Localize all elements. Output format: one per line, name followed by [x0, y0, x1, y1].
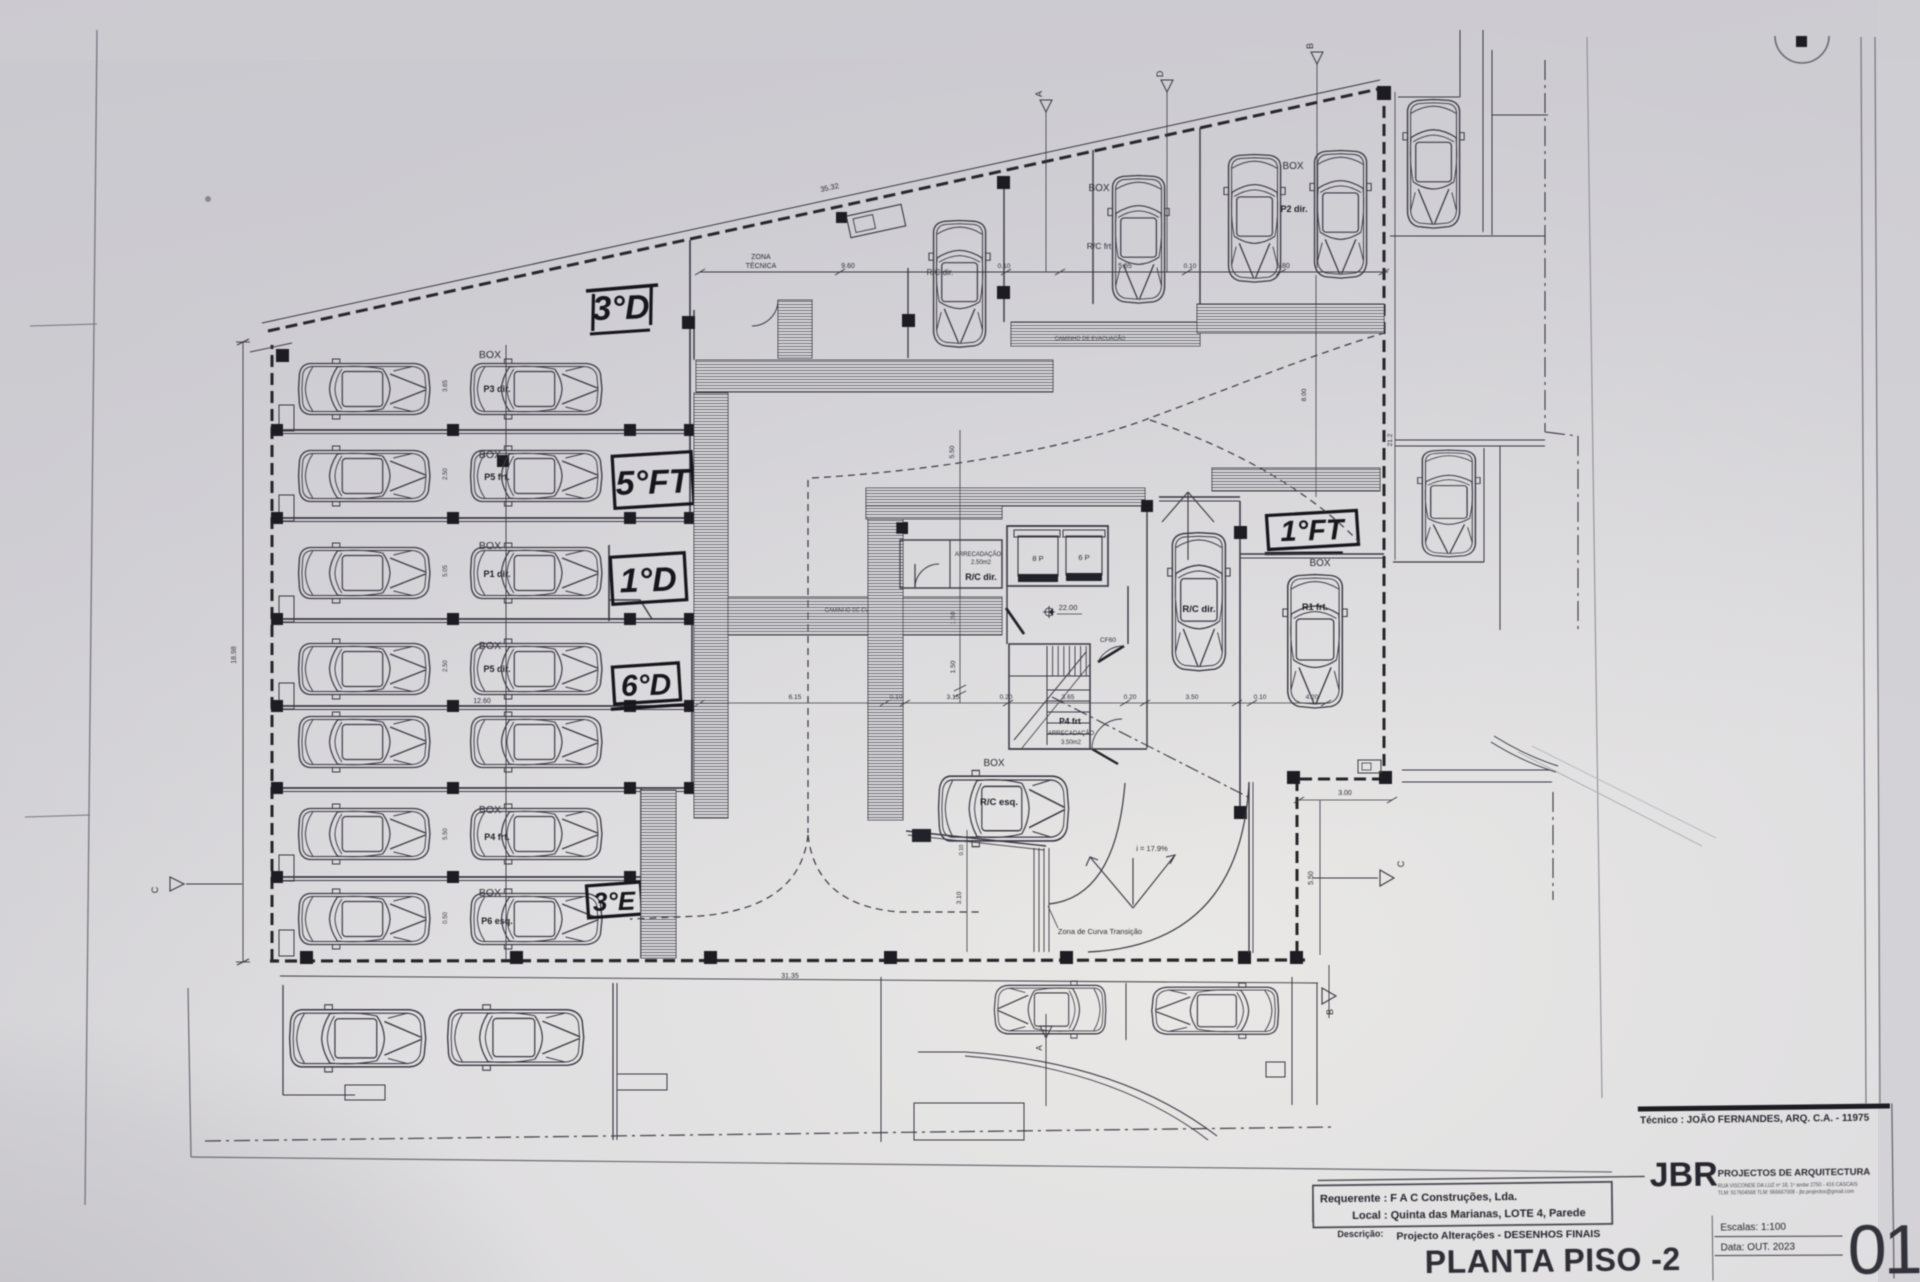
svg-text:6°D: 6°D	[620, 668, 671, 703]
svg-text:18.98: 18.98	[231, 646, 238, 664]
svg-text:0.20: 0.20	[1124, 694, 1137, 701]
svg-text:3.50m2: 3.50m2	[1061, 740, 1082, 746]
svg-text:5.50: 5.50	[949, 445, 956, 458]
svg-text:0.50: 0.50	[443, 912, 449, 924]
svg-text:Requerente : F A C Construçõe: Requerente : F A C Construções, Lda.	[1320, 1191, 1517, 1205]
svg-text:0.10: 0.10	[959, 845, 965, 856]
svg-text:BOX: BOX	[479, 349, 501, 361]
svg-text:BOX: BOX	[479, 804, 501, 816]
svg-text:5°FT: 5°FT	[615, 462, 694, 503]
svg-text:BOX: BOX	[1282, 161, 1303, 172]
svg-text:2.50m2: 2.50m2	[971, 560, 992, 566]
svg-text:Projecto Alterações - DESENHOS: Projecto Alterações - DESENHOS FINAIS	[1396, 1228, 1600, 1242]
svg-text:ARRECADAÇÃO: ARRECADAÇÃO	[955, 551, 1002, 558]
svg-text:R/C esq.: R/C esq.	[980, 797, 1018, 808]
svg-text:Data: OUT. 2023: Data: OUT. 2023	[1721, 1242, 1796, 1254]
svg-text:12.60: 12.60	[473, 698, 491, 705]
svg-text:B: B	[1305, 43, 1315, 49]
svg-text:3°E: 3°E	[592, 886, 636, 917]
svg-text:Descrição:: Descrição:	[1337, 1229, 1383, 1240]
svg-text:R/C dir.: R/C dir.	[965, 572, 997, 582]
svg-text:ARRECADAÇÃO: ARRECADAÇÃO	[1048, 730, 1095, 737]
svg-text:P2 dir.: P2 dir.	[1280, 204, 1307, 214]
svg-text:3.65: 3.65	[443, 380, 449, 392]
svg-text:i = 17.9%: i = 17.9%	[1136, 844, 1168, 853]
svg-text:6 P: 6 P	[1078, 553, 1089, 562]
svg-text:0.10: 0.10	[1184, 263, 1197, 270]
svg-text:C: C	[150, 886, 160, 893]
svg-text:8 P: 8 P	[1032, 554, 1043, 563]
svg-text:CF60: CF60	[1100, 637, 1116, 644]
svg-text:P4 frt.: P4 frt.	[484, 832, 510, 842]
svg-text:B: B	[1325, 1009, 1335, 1015]
svg-text:1.50: 1.50	[950, 611, 957, 624]
svg-text:R/C frt: R/C frt	[1087, 241, 1112, 251]
svg-text:3.10: 3.10	[956, 891, 963, 904]
svg-text:21.2: 21.2	[1387, 433, 1394, 446]
svg-text:P5 frt.: P5 frt.	[484, 472, 510, 482]
svg-text:A: A	[1034, 91, 1044, 97]
svg-text:BOX: BOX	[983, 758, 1004, 769]
svg-text:P1 dir.: P1 dir.	[483, 569, 510, 579]
svg-text:R1 frt.: R1 frt.	[1302, 602, 1328, 612]
svg-text:PROJECTOS DE ARQUITECTURA: PROJECTOS DE ARQUITECTURA	[1718, 1167, 1871, 1180]
svg-text:3.00: 3.00	[1338, 790, 1352, 797]
svg-text:1°FT: 1°FT	[1280, 514, 1347, 548]
svg-text:R/C dir.: R/C dir.	[927, 268, 954, 277]
svg-text:31.35: 31.35	[781, 973, 799, 980]
svg-text:6.15: 6.15	[789, 694, 802, 701]
svg-text:9.60: 9.60	[841, 263, 855, 270]
svg-text:2.50: 2.50	[443, 468, 449, 480]
svg-text:C: C	[1396, 860, 1406, 867]
svg-text:Escalas: 1:100: Escalas: 1:100	[1720, 1222, 1786, 1234]
svg-text:ZONA: ZONA	[751, 254, 771, 261]
svg-text:PLANTA PISO -2: PLANTA PISO -2	[1425, 1241, 1681, 1280]
svg-text:Zona de Curva Transição: Zona de Curva Transição	[1058, 927, 1142, 936]
svg-text:0.20: 0.20	[1000, 694, 1013, 701]
svg-text:BOX: BOX	[1309, 558, 1330, 569]
svg-text:01: 01	[1847, 1210, 1920, 1282]
svg-text:3.65: 3.65	[1062, 694, 1075, 701]
svg-text:3°D: 3°D	[592, 288, 650, 328]
svg-text:3.50: 3.50	[1186, 694, 1199, 701]
svg-text:TÉCNICA: TÉCNICA	[746, 261, 777, 270]
svg-text:JBR: JBR	[1649, 1156, 1717, 1195]
svg-text:R/C dir.: R/C dir.	[1182, 604, 1215, 615]
svg-text:D: D	[1155, 70, 1165, 77]
svg-text:1°D: 1°D	[619, 560, 677, 600]
svg-text:CAMINHO DE EVACUAÇÃO: CAMINHO DE EVACUAÇÃO	[1055, 335, 1127, 342]
svg-text:0.10: 0.10	[1254, 694, 1267, 701]
svg-text:1.50: 1.50	[950, 660, 957, 673]
svg-text:P4 frt: P4 frt	[1059, 716, 1081, 726]
svg-text:8.00: 8.00	[1301, 388, 1308, 401]
svg-text:5.50: 5.50	[443, 828, 449, 840]
svg-text:0.10: 0.10	[890, 694, 903, 701]
svg-text:5.05: 5.05	[443, 565, 449, 577]
svg-text:2.50: 2.50	[443, 660, 449, 672]
svg-text:22.00: 22.00	[1059, 603, 1078, 612]
svg-text:BOX: BOX	[1088, 183, 1109, 194]
svg-text:A: A	[1035, 1045, 1044, 1051]
svg-text:5.80: 5.80	[1276, 263, 1290, 270]
